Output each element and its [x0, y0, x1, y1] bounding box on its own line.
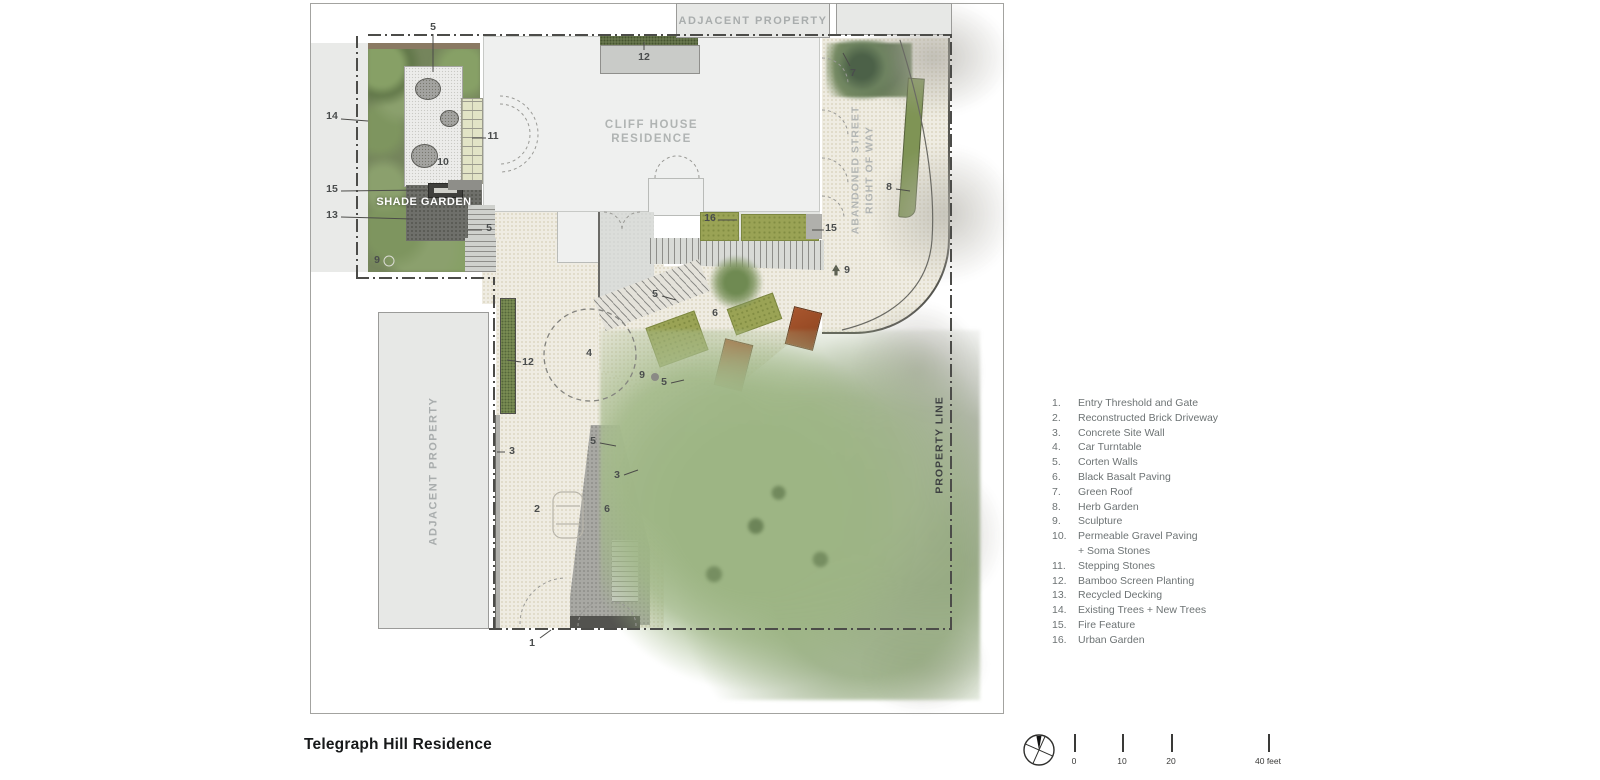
- legend: 1.Entry Threshold and Gate2.Reconstructe…: [1052, 396, 1252, 648]
- garden-fence: [368, 43, 480, 49]
- adjacent-property-west-area: [311, 43, 371, 272]
- scale-tick-label: 20: [1166, 756, 1175, 766]
- concrete-site-wall: [495, 415, 500, 628]
- property-line-west-lower: [493, 277, 495, 630]
- legend-item: 9.Sculpture: [1052, 514, 1252, 529]
- scale-tick: [1122, 734, 1124, 752]
- legend-item: 8.Herb Garden: [1052, 500, 1252, 515]
- cliff-house-residence-label: CLIFF HOUSE RESIDENCE: [483, 118, 820, 146]
- legend-item: 6.Black Basalt Paving: [1052, 470, 1252, 485]
- property-line-west: [356, 36, 358, 278]
- adjacent-property-box-top: ADJACENT PROPERTY: [676, 3, 830, 38]
- stair: [465, 238, 496, 272]
- adjacent-property-box-left: ADJACENT PROPERTY: [378, 312, 489, 629]
- abandoned-street-label: ABANDONED STREET RIGHT OF WAY: [787, 95, 937, 245]
- scale-tick-label: 0: [1072, 756, 1077, 766]
- soma-stone: [440, 110, 459, 127]
- scale-tick-label: 10: [1117, 756, 1126, 766]
- site-plan-sheet: ADJACENT PROPERTY ADJACENT PROPERTY CLIF…: [0, 0, 1600, 780]
- adjacent-property-box-top-right: [836, 3, 952, 35]
- legend-item: 4.Car Turntable: [1052, 440, 1252, 455]
- legend-item: 11.Stepping Stones: [1052, 559, 1252, 574]
- property-line-bottom: [489, 628, 952, 630]
- legend-item: 3.Concrete Site Wall: [1052, 426, 1252, 441]
- adjacent-property-label: ADJACENT PROPERTY: [428, 396, 440, 545]
- legend-item: 10.Permeable Gravel Paving: [1052, 529, 1252, 544]
- drawing-title: Telegraph Hill Residence: [304, 736, 492, 754]
- bamboo-screen-planting-west: [500, 298, 516, 414]
- legend-item: 13.Recycled Decking: [1052, 588, 1252, 603]
- property-line-label: PROPERTY LINE: [905, 375, 975, 515]
- scale-tick: [1171, 734, 1173, 752]
- soma-stone: [411, 144, 438, 168]
- shade-garden-label: SHADE GARDEN: [368, 196, 480, 208]
- roof-deck: [600, 45, 700, 74]
- urban-garden-panel: [700, 212, 739, 241]
- soma-stone: [415, 78, 441, 100]
- stepping-stones: [461, 98, 483, 184]
- property-line-right: [950, 34, 952, 630]
- legend-item: 16.Urban Garden: [1052, 633, 1252, 648]
- legend-item: 12.Bamboo Screen Planting: [1052, 574, 1252, 589]
- north-arrow: [1021, 732, 1057, 768]
- shrub: [834, 40, 904, 100]
- property-line-west-jog: [356, 277, 495, 279]
- legend-item: 1.Entry Threshold and Gate: [1052, 396, 1252, 411]
- legend-item: 15.Fire Feature: [1052, 618, 1252, 633]
- bench: [448, 180, 482, 190]
- tree: [706, 255, 766, 310]
- scale-tick: [1074, 734, 1076, 752]
- legend-item: 14.Existing Trees + New Trees: [1052, 603, 1252, 618]
- legend-item: 5.Corten Walls: [1052, 455, 1252, 470]
- property-line-top: [368, 34, 952, 36]
- legend-item: 2.Reconstructed Brick Driveway: [1052, 411, 1252, 426]
- adjacent-property-label: ADJACENT PROPERTY: [679, 15, 828, 27]
- house-bay: [648, 178, 704, 216]
- scale-tick-label: 40 feet: [1255, 756, 1281, 766]
- scale-tick: [1268, 734, 1270, 752]
- house-notch: [557, 212, 600, 263]
- legend-item-continued: + Soma Stones: [1052, 544, 1252, 559]
- legend-item: 7.Green Roof: [1052, 485, 1252, 500]
